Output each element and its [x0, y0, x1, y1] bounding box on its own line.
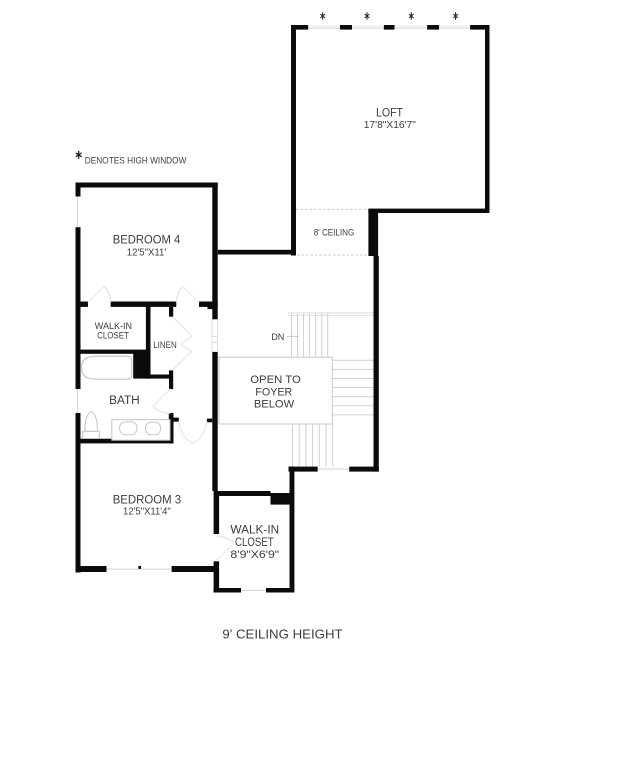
svg-text:BELOW: BELOW [254, 398, 295, 410]
svg-text:DN: DN [271, 332, 284, 343]
svg-text:BEDROOM 4: BEDROOM 4 [113, 232, 181, 246]
svg-text:LOFT: LOFT [376, 106, 403, 120]
svg-text:OPEN TO: OPEN TO [250, 374, 301, 386]
svg-text:CLOSET: CLOSET [97, 330, 129, 341]
svg-text:8' CEILING: 8' CEILING [314, 228, 355, 238]
svg-text:DENOTES HIGH WINDOW: DENOTES HIGH WINDOW [85, 156, 187, 167]
svg-text:8'9"X6'9": 8'9"X6'9" [230, 549, 279, 561]
svg-text:12'5"X11'4": 12'5"X11'4" [123, 506, 171, 518]
svg-text:CLOSET: CLOSET [235, 536, 274, 549]
svg-text:BATH: BATH [109, 393, 140, 407]
svg-text:LINEN: LINEN [153, 340, 177, 350]
svg-text:FOYER: FOYER [255, 387, 292, 399]
svg-text:17'8"X16'7": 17'8"X16'7" [364, 119, 416, 131]
svg-text:9' CEILING HEIGHT: 9' CEILING HEIGHT [222, 627, 342, 642]
svg-text:12'5"X11': 12'5"X11' [127, 246, 166, 258]
svg-text:BEDROOM 3: BEDROOM 3 [113, 492, 182, 506]
svg-text:WALK-IN: WALK-IN [230, 524, 279, 537]
